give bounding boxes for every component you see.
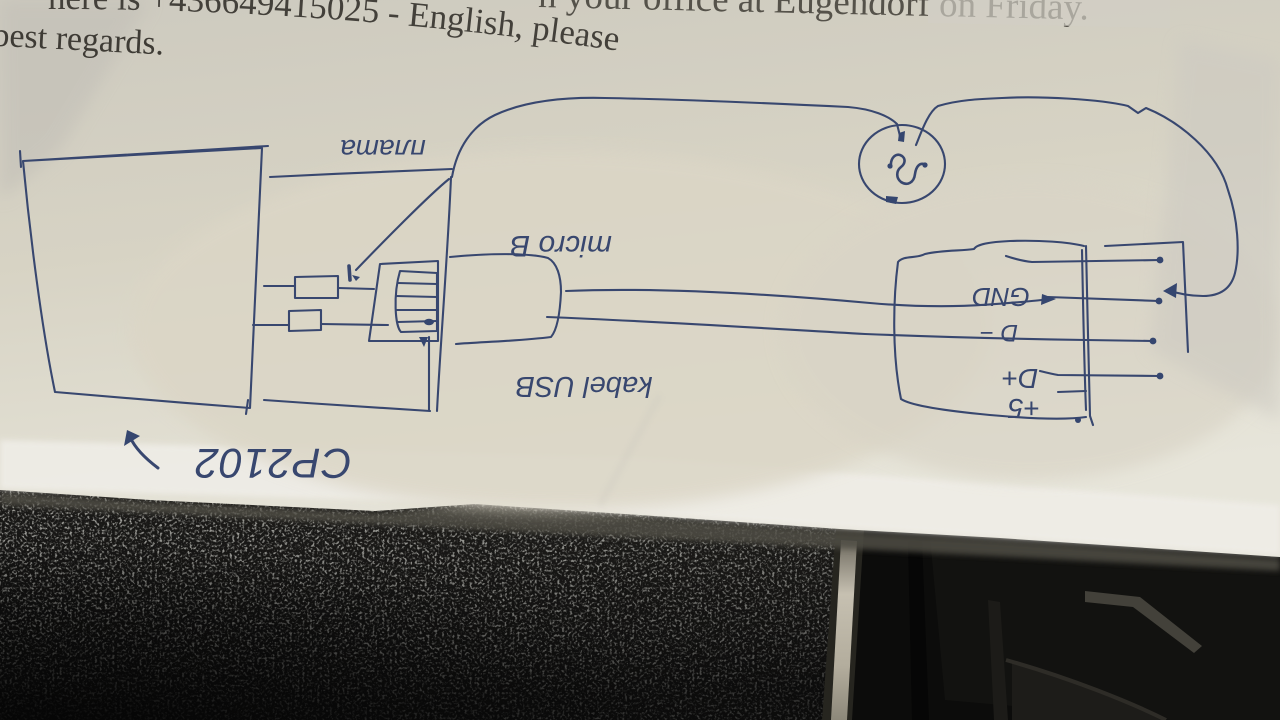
svg-text:kabel USB: kabel USB <box>515 370 652 402</box>
svg-text:GND: GND <box>972 282 1030 312</box>
svg-text:micro B: micro B <box>510 229 612 262</box>
svg-text:CP2102: CP2102 <box>194 440 352 487</box>
svg-text:D+: D+ <box>1002 363 1039 394</box>
svg-text:плата: плата <box>340 134 425 165</box>
svg-text:+5: +5 <box>1008 393 1040 424</box>
svg-text:D −: D − <box>980 319 1018 346</box>
